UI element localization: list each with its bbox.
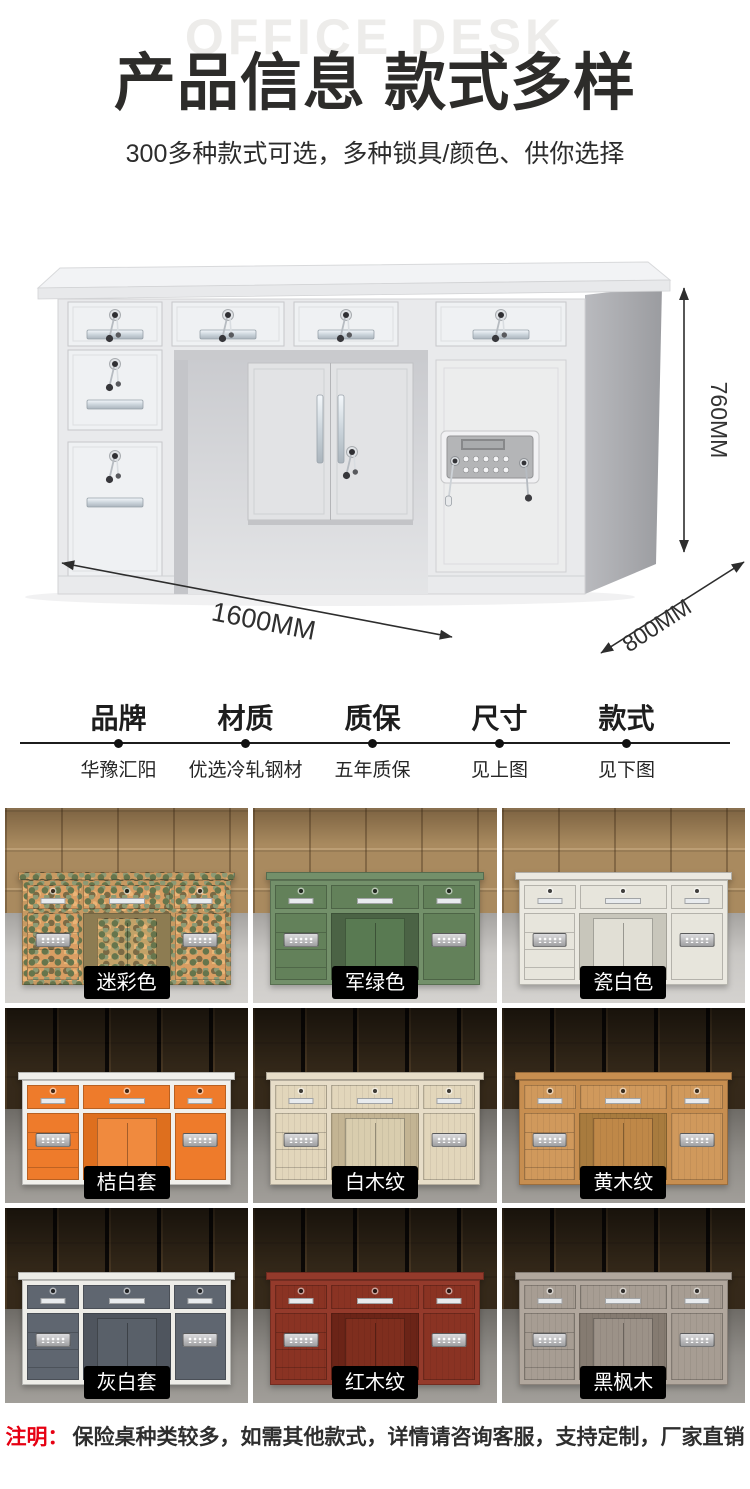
spec-value-style: 见下图 — [563, 755, 690, 782]
spec-value-material: 优选冷轧钢材 — [182, 755, 309, 782]
variant-cell-camo: 迷彩色 — [5, 808, 248, 1003]
combo-lock — [284, 933, 319, 947]
spec-dot — [495, 739, 504, 748]
note-text: 保险桌种类较多，如需其他款式，详情请咨询客服，支持定制，厂家直销 — [73, 1421, 745, 1451]
variant-cell-army-green: 军绿色 — [253, 808, 496, 1003]
combo-lock — [183, 1333, 218, 1347]
combo-lock — [532, 1133, 567, 1147]
drawer-handle — [87, 330, 143, 339]
drawer-handle — [87, 400, 143, 409]
variant-label: 迷彩色 — [84, 966, 170, 999]
drawer-handle — [87, 498, 143, 507]
drawer — [172, 302, 284, 346]
door-handle — [317, 395, 323, 463]
drawer — [68, 302, 162, 346]
spec-dot — [241, 739, 250, 748]
variant-label: 瓷白色 — [580, 966, 666, 999]
variant-cell-white-wood: 白木纹 — [253, 1008, 496, 1203]
spec-headers: 品牌 材质 质保 尺寸 款式 — [0, 700, 750, 738]
combo-lock — [532, 1333, 567, 1347]
variant-cell-porcelain-white: 瓷白色 — [502, 808, 745, 1003]
variant-label: 军绿色 — [332, 966, 418, 999]
combo-lock — [284, 1333, 319, 1347]
spec-dot — [368, 739, 377, 748]
hero-figure: 760MM 1600MM 800MM — [0, 230, 750, 700]
combo-lock — [36, 1133, 71, 1147]
combo-lock — [284, 1133, 319, 1147]
spec-value-brand: 华豫汇阳 — [55, 755, 182, 782]
spec-dot — [622, 739, 631, 748]
combo-lock — [431, 1333, 466, 1347]
desk-illustration: 760MM 1600MM 800MM — [0, 230, 750, 700]
combo-lock — [680, 1133, 715, 1147]
combo-lock — [680, 933, 715, 947]
variant-cell-gray-white: 灰白套 — [5, 1208, 248, 1403]
drawer-handle — [200, 330, 256, 339]
drawer — [68, 350, 162, 430]
cabinet-doors — [248, 363, 413, 525]
spec-values: 华豫汇阳 优选冷轧钢材 五年质保 见上图 见下图 — [0, 744, 750, 782]
door-handle — [338, 395, 344, 463]
variant-label: 黄木纹 — [580, 1166, 666, 1199]
specs-section: 品牌 材质 质保 尺寸 款式 华豫汇阳 优选冷轧钢材 五年质保 见上图 见下图 — [0, 700, 750, 782]
combo-lock — [680, 1333, 715, 1347]
spec-label-size: 尺寸 — [436, 700, 563, 738]
note-section: 注明： 保险桌种类较多，如需其他款式，详情请咨询客服，支持定制，厂家直销 — [0, 1421, 750, 1451]
hero-desk — [25, 262, 670, 606]
spec-label-warranty: 质保 — [309, 700, 436, 738]
spec-label-style: 款式 — [563, 700, 690, 738]
drawer-handle — [473, 330, 529, 339]
left-pedestal — [58, 350, 174, 576]
spec-value-size: 见上图 — [436, 755, 563, 782]
combo-lock — [36, 933, 71, 947]
variant-label: 红木纹 — [332, 1366, 418, 1399]
spec-dots — [55, 739, 690, 748]
variant-label: 桔白套 — [84, 1166, 170, 1199]
combo-lock — [183, 933, 218, 947]
note-prefix-label: 注明： — [6, 1421, 69, 1451]
page-title: 产品信息 款式多样 — [0, 32, 750, 122]
spec-label-material: 材质 — [182, 700, 309, 738]
dim-depth-label: 800MM — [617, 594, 695, 658]
combo-lock — [183, 1133, 218, 1147]
combo-lock — [431, 933, 466, 947]
variant-label: 黑枫木 — [580, 1366, 666, 1399]
variants-grid: 迷彩色 军绿色 瓷白色 桔白套 — [5, 808, 745, 1403]
variant-cell-yellow-wood: 黄木纹 — [502, 1008, 745, 1203]
combo-lock — [431, 1133, 466, 1147]
drawer — [68, 442, 162, 576]
variant-cell-black-maple: 黑枫木 — [502, 1208, 745, 1403]
drawer — [436, 302, 566, 346]
variant-cell-red-wood: 红木纹 — [253, 1208, 496, 1403]
dim-height-label: 760MM — [706, 382, 732, 459]
spec-divider-line — [20, 742, 730, 744]
combo-lock — [532, 933, 567, 947]
variant-label: 灰白套 — [84, 1366, 170, 1399]
combo-lock — [36, 1333, 71, 1347]
variant-label: 白木纹 — [332, 1166, 418, 1199]
knee-space — [174, 350, 428, 594]
top-drawers — [68, 302, 566, 346]
spec-dot — [114, 739, 123, 748]
spec-value-warranty: 五年质保 — [309, 755, 436, 782]
desk-side-panel — [585, 286, 662, 594]
variant-cell-orange-white: 桔白套 — [5, 1008, 248, 1203]
spec-label-brand: 品牌 — [55, 700, 182, 738]
drawer-handle — [318, 330, 374, 339]
page-subtitle: 300多种款式可选，多种锁具/颜色、供你选择 — [0, 134, 750, 170]
right-pedestal-safe — [428, 360, 585, 576]
dim-height: 760MM — [684, 288, 732, 552]
drawer — [294, 302, 398, 346]
